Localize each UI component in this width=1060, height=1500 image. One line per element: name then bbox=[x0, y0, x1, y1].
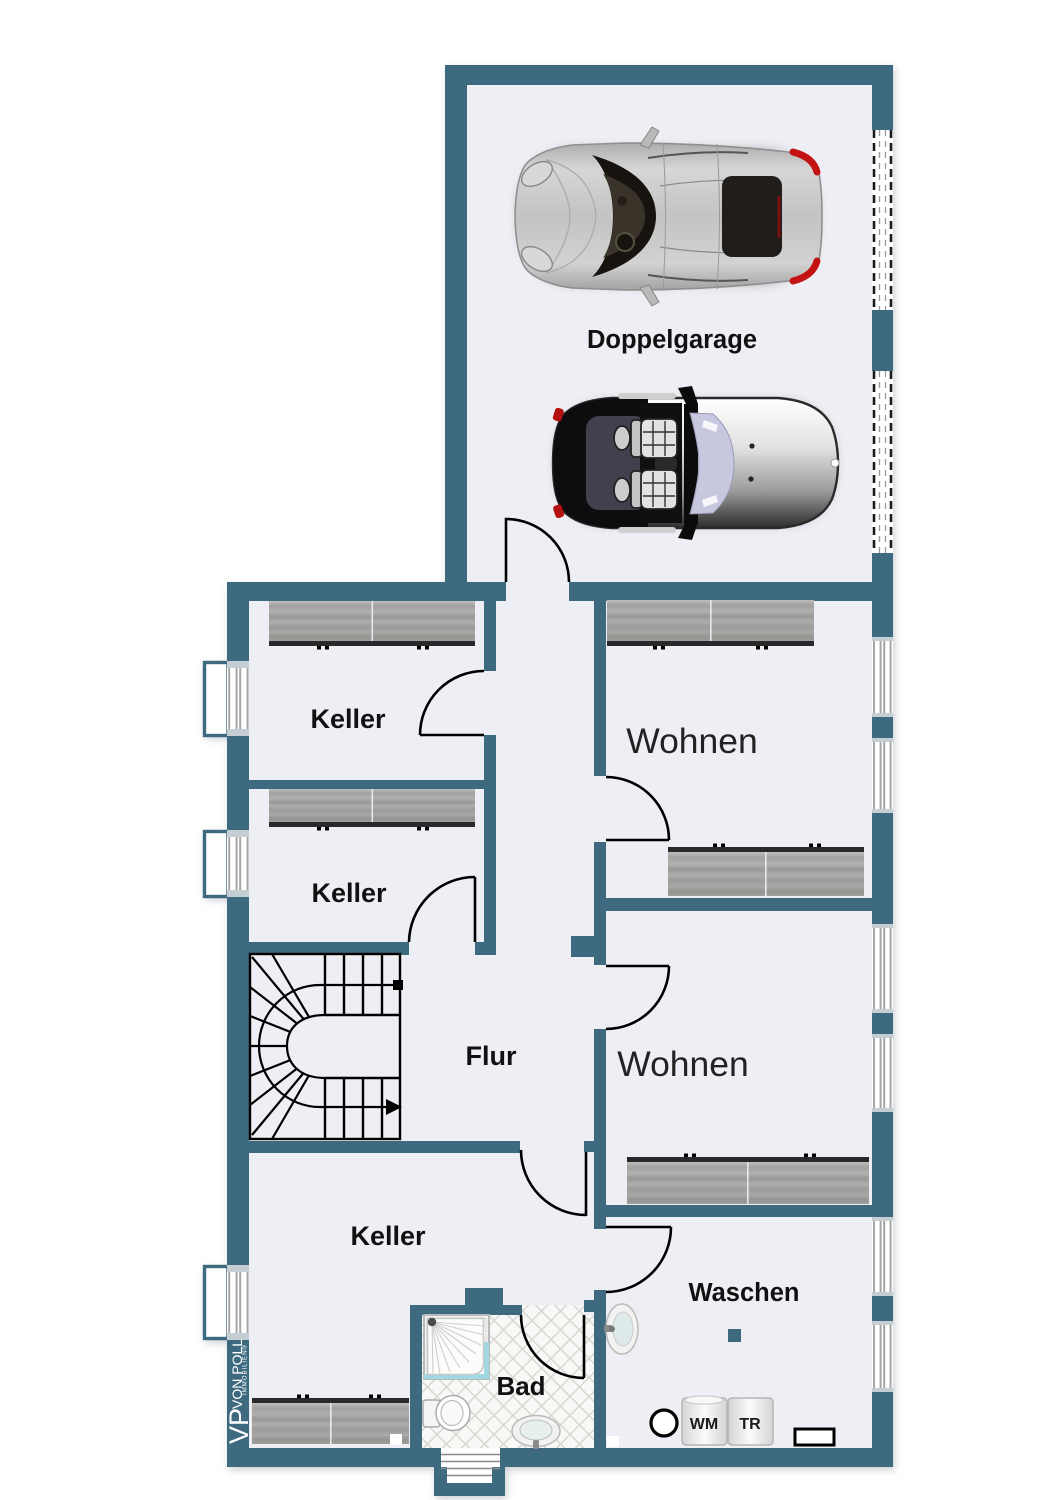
svg-text:Keller: Keller bbox=[310, 704, 386, 734]
svg-text:Keller: Keller bbox=[350, 1221, 426, 1251]
svg-text:Bad: Bad bbox=[496, 1371, 545, 1401]
svg-text:Doppelgarage: Doppelgarage bbox=[587, 326, 757, 354]
svg-text:VP: VP bbox=[224, 1408, 254, 1444]
svg-text:Wohnen: Wohnen bbox=[617, 1044, 749, 1084]
svg-text:IMMOBILIEN®: IMMOBILIEN® bbox=[242, 1344, 249, 1395]
svg-text:WM: WM bbox=[690, 1416, 718, 1433]
svg-text:Flur: Flur bbox=[466, 1041, 517, 1071]
svg-text:Keller: Keller bbox=[311, 878, 387, 908]
svg-text:TR: TR bbox=[739, 1416, 761, 1433]
svg-text:Wohnen: Wohnen bbox=[626, 721, 758, 761]
svg-text:Waschen: Waschen bbox=[688, 1279, 799, 1307]
